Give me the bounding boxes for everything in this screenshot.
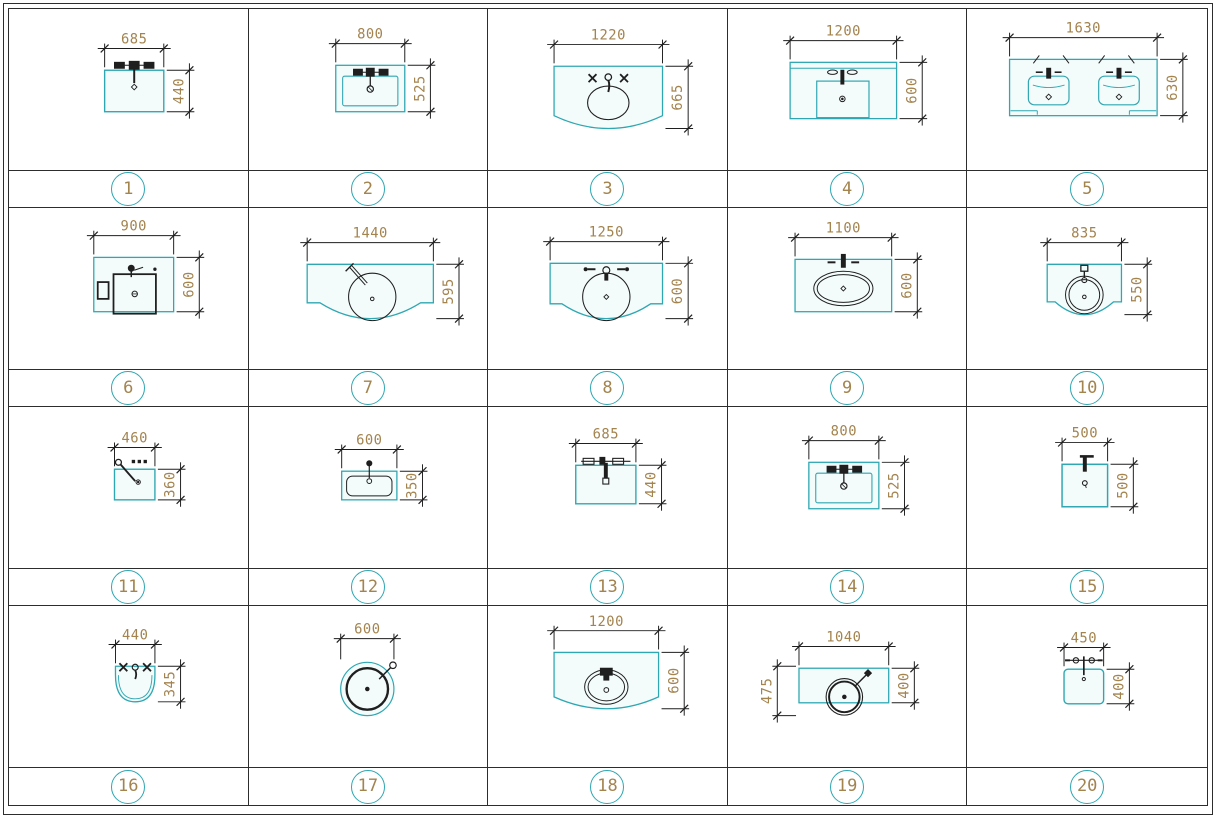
height-dim-label: 600 [899, 272, 915, 298]
width-dim-label: 1440 [352, 226, 387, 242]
item-number-cell-20: 20 [967, 768, 1207, 805]
item-number-badge: 8 [590, 371, 624, 405]
sink-plan-11: 460360 [9, 407, 248, 568]
item-number-cell-15: 15 [967, 569, 1207, 606]
item-number-badge: 18 [590, 770, 624, 804]
height-dim-label: 600 [670, 278, 686, 304]
item-number-cell-10: 10 [967, 370, 1207, 407]
item-number-badge: 11 [111, 570, 145, 604]
item-number-cell-12: 12 [249, 569, 489, 606]
width-dim-label: 685 [593, 427, 619, 443]
item-number-cell-6: 6 [9, 370, 249, 407]
item-number: 16 [118, 778, 138, 795]
item-number-badge: 9 [830, 371, 864, 405]
item-number: 1 [123, 181, 133, 198]
item-number-cell-1: 1 [9, 171, 249, 208]
fixture-cell-4: 1200600 [728, 9, 968, 171]
item-number-cell-16: 16 [9, 768, 249, 805]
width-dim-label: 1200 [589, 614, 624, 630]
sink-outline [576, 457, 636, 503]
fixture-cell-9: 1100600 [728, 208, 968, 370]
sink-outline [554, 66, 662, 128]
sink-plan-16: 440345 [9, 606, 248, 767]
sink-plan-19: 1040400475 [728, 606, 967, 767]
width-dim-label: 440 [122, 628, 148, 644]
item-number-badge: 10 [1070, 371, 1104, 405]
item-number: 17 [358, 778, 378, 795]
sink-plan-8: 1250600 [488, 208, 727, 369]
sink-outline [1010, 55, 1158, 115]
height-dim-label: 350 [404, 472, 420, 498]
item-number-cell-7: 7 [249, 370, 489, 407]
sink-plan-17: 600 [249, 606, 488, 767]
fixture-cell-15: 500500 [967, 407, 1207, 569]
item-number: 7 [363, 380, 373, 397]
height-dim-label: 630 [1165, 74, 1181, 100]
left-height-dim-label: 475 [759, 678, 775, 704]
fixture-cell-7: 1440595 [249, 208, 489, 370]
item-number: 8 [602, 380, 612, 397]
height-dim-label: 595 [441, 278, 457, 304]
height-dim-label: 525 [412, 75, 428, 101]
item-number-badge: 20 [1070, 770, 1104, 804]
sink-outline [809, 462, 879, 508]
width-dim-label: 800 [357, 27, 383, 43]
item-number-cell-8: 8 [488, 370, 728, 407]
sink-plan-3: 1220665 [488, 9, 727, 170]
sink-outline [307, 263, 433, 320]
item-number: 4 [842, 181, 852, 198]
fixture-cell-2: 800525 [249, 9, 489, 171]
width-dim-label: 1100 [826, 221, 861, 237]
item-number-badge: 2 [351, 172, 385, 206]
fixture-cell-3: 1220665 [488, 9, 728, 171]
width-dim-label: 450 [1071, 631, 1098, 647]
item-number: 13 [597, 579, 617, 596]
item-number-cell-18: 18 [488, 768, 728, 805]
item-number: 10 [1077, 380, 1097, 397]
sink-outline [115, 663, 154, 702]
sink-outline [790, 62, 896, 118]
sink-plan-2: 800525 [249, 9, 488, 170]
item-number-badge: 19 [830, 770, 864, 804]
fixture-cell-20: 450400 [967, 606, 1207, 768]
sink-outline [340, 662, 396, 716]
item-number-badge: 14 [830, 570, 864, 604]
item-number-cell-11: 11 [9, 569, 249, 606]
height-dim-label: 665 [670, 84, 686, 110]
sink-plan-1: 685440 [9, 9, 248, 170]
item-number: 2 [363, 181, 373, 198]
fixture-cell-1: 685440 [9, 9, 249, 171]
item-number-cell-14: 14 [728, 569, 968, 606]
width-dim-label: 1200 [826, 24, 861, 40]
height-dim-label: 360 [163, 471, 179, 497]
item-number: 19 [837, 778, 857, 795]
fixture-cell-8: 1250600 [488, 208, 728, 370]
width-dim-label: 1220 [591, 28, 626, 44]
width-dim-label: 800 [830, 424, 856, 440]
item-number: 5 [1082, 181, 1092, 198]
height-dim-label: 400 [896, 672, 912, 698]
item-number: 9 [842, 380, 852, 397]
width-dim-label: 1250 [589, 225, 624, 241]
fixture-cell-18: 1200600 [488, 606, 728, 768]
width-dim-label: 460 [122, 431, 148, 447]
item-number-badge: 15 [1070, 570, 1104, 604]
sink-outline [799, 668, 889, 715]
fixture-cell-14: 800525 [728, 407, 968, 569]
fixture-cell-11: 460360 [9, 407, 249, 569]
sink-plan-15: 500500 [967, 407, 1207, 568]
item-number-cell-3: 3 [488, 171, 728, 208]
item-number: 18 [597, 778, 617, 795]
item-number-badge: 16 [111, 770, 145, 804]
sink-outline [341, 461, 396, 500]
sink-plan-5: 1630630 [967, 9, 1207, 170]
width-dim-label: 900 [121, 219, 147, 235]
width-dim-label: 600 [354, 622, 380, 638]
height-dim-label: 600 [666, 667, 682, 693]
fixture-cell-5: 1630630 [967, 9, 1207, 171]
item-number: 3 [602, 181, 612, 198]
sink-plan-14: 800525 [728, 407, 967, 568]
sink-plan-10: 835550 [967, 208, 1207, 369]
height-dim-label: 400 [1112, 673, 1128, 699]
height-dim-label: 345 [163, 671, 179, 697]
height-dim-label: 600 [181, 271, 197, 297]
sink-outline [554, 652, 659, 708]
item-number-badge: 7 [351, 371, 385, 405]
fixture-cell-13: 685440 [488, 407, 728, 569]
fixture-cell-16: 440345 [9, 606, 249, 768]
sink-outline [94, 257, 174, 313]
sink-plan-18: 1200600 [488, 606, 727, 767]
width-dim-label: 500 [1072, 426, 1099, 442]
sink-outline [114, 459, 154, 499]
item-number-cell-19: 19 [728, 768, 968, 805]
item-number: 6 [123, 380, 133, 397]
sink-outline [1062, 456, 1108, 506]
width-dim-label: 835 [1071, 226, 1098, 242]
item-number-badge: 13 [590, 570, 624, 604]
item-number-badge: 6 [111, 371, 145, 405]
fixture-cell-19: 1040400475 [728, 606, 968, 768]
sink-plan-4: 1200600 [728, 9, 967, 170]
item-number: 20 [1077, 778, 1097, 795]
width-dim-label: 600 [356, 433, 382, 449]
sink-outline [1048, 264, 1122, 314]
height-dim-label: 440 [172, 78, 188, 104]
sink-plan-7: 1440595 [249, 208, 488, 369]
fixture-grid: 6854408005251220665120060016306301234590… [8, 8, 1208, 806]
height-dim-label: 600 [904, 77, 920, 103]
dimension-lines: 600 [333, 622, 400, 660]
fixture-cell-12: 600350 [249, 407, 489, 569]
sink-outline [335, 65, 404, 111]
item-number-cell-2: 2 [249, 171, 489, 208]
sink-outline [105, 61, 164, 111]
item-number: 15 [1077, 579, 1097, 596]
height-dim-label: 525 [886, 472, 902, 498]
item-number-cell-5: 5 [967, 171, 1207, 208]
sink-plan-12: 600350 [249, 407, 488, 568]
item-number-badge: 3 [590, 172, 624, 206]
width-dim-label: 1630 [1066, 21, 1101, 37]
item-number: 11 [118, 579, 138, 596]
item-number-badge: 17 [351, 770, 385, 804]
item-number-badge: 5 [1070, 172, 1104, 206]
sheet-outer-frame: 6854408005251220665120060016306301234590… [3, 3, 1213, 815]
fixture-cell-17: 600 [249, 606, 489, 768]
height-dim-label: 440 [644, 471, 660, 497]
sink-outline [795, 254, 892, 311]
height-dim-label: 500 [1116, 472, 1132, 498]
sink-plan-13: 685440 [488, 407, 727, 568]
item-number: 12 [358, 579, 378, 596]
item-number-badge: 4 [830, 172, 864, 206]
item-number-badge: 1 [111, 172, 145, 206]
width-dim-label: 685 [121, 32, 147, 48]
item-number: 14 [837, 579, 857, 596]
width-dim-label: 1040 [826, 630, 861, 646]
sink-outline [1064, 656, 1104, 703]
sink-plan-20: 450400 [967, 606, 1207, 767]
fixture-cell-10: 835550 [967, 208, 1207, 370]
height-dim-label: 550 [1130, 276, 1146, 302]
item-number-cell-17: 17 [249, 768, 489, 805]
item-number-cell-13: 13 [488, 569, 728, 606]
sink-plan-9: 1100600 [728, 208, 967, 369]
item-number-badge: 12 [351, 570, 385, 604]
item-number-cell-9: 9 [728, 370, 968, 407]
sink-plan-6: 900600 [9, 208, 248, 369]
sink-outline [550, 263, 662, 320]
item-number-cell-4: 4 [728, 171, 968, 208]
fixture-cell-6: 900600 [9, 208, 249, 370]
